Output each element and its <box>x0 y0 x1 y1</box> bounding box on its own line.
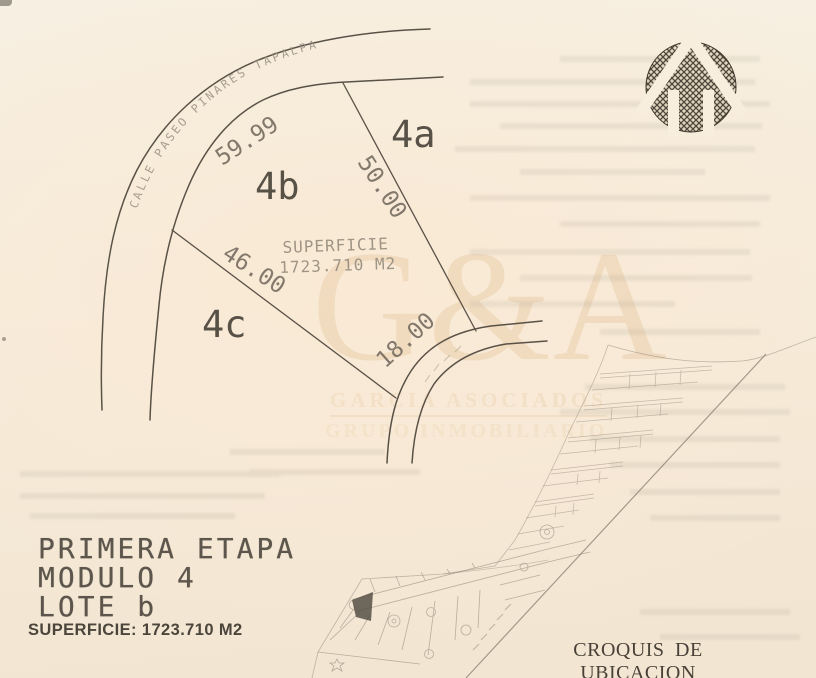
lot-4b-label: 4b <box>255 165 300 208</box>
title-superficie: SUPERFICIE: 1723.710 M2 <box>28 621 243 640</box>
scanned-plot-plan-page: G&A GARCIA ASOCIADOS GRUPO INMOBILIARIO <box>0 0 816 678</box>
measure-front-59-99: 59.99 <box>211 112 283 172</box>
sketch-star-symbol <box>330 659 344 671</box>
plot-area-label-line1: SUPERFICIE <box>282 234 389 257</box>
scan-speck-left <box>2 337 6 341</box>
scan-speck-corner <box>0 0 12 6</box>
side-street-inner-curve <box>412 341 547 463</box>
title-lote: LOTE b <box>38 590 157 623</box>
measure-rear-18-00: 18.00 <box>372 308 441 374</box>
lot-4a-label: 4a <box>391 113 436 156</box>
measure-right-50-00: 50.00 <box>352 151 412 223</box>
plot-area-label-line2: 1723.710 M2 <box>279 254 397 277</box>
croquis-caption: CROQUIS DE UBICACION <box>518 639 758 678</box>
lot-4c-label: 4c <box>202 303 247 346</box>
